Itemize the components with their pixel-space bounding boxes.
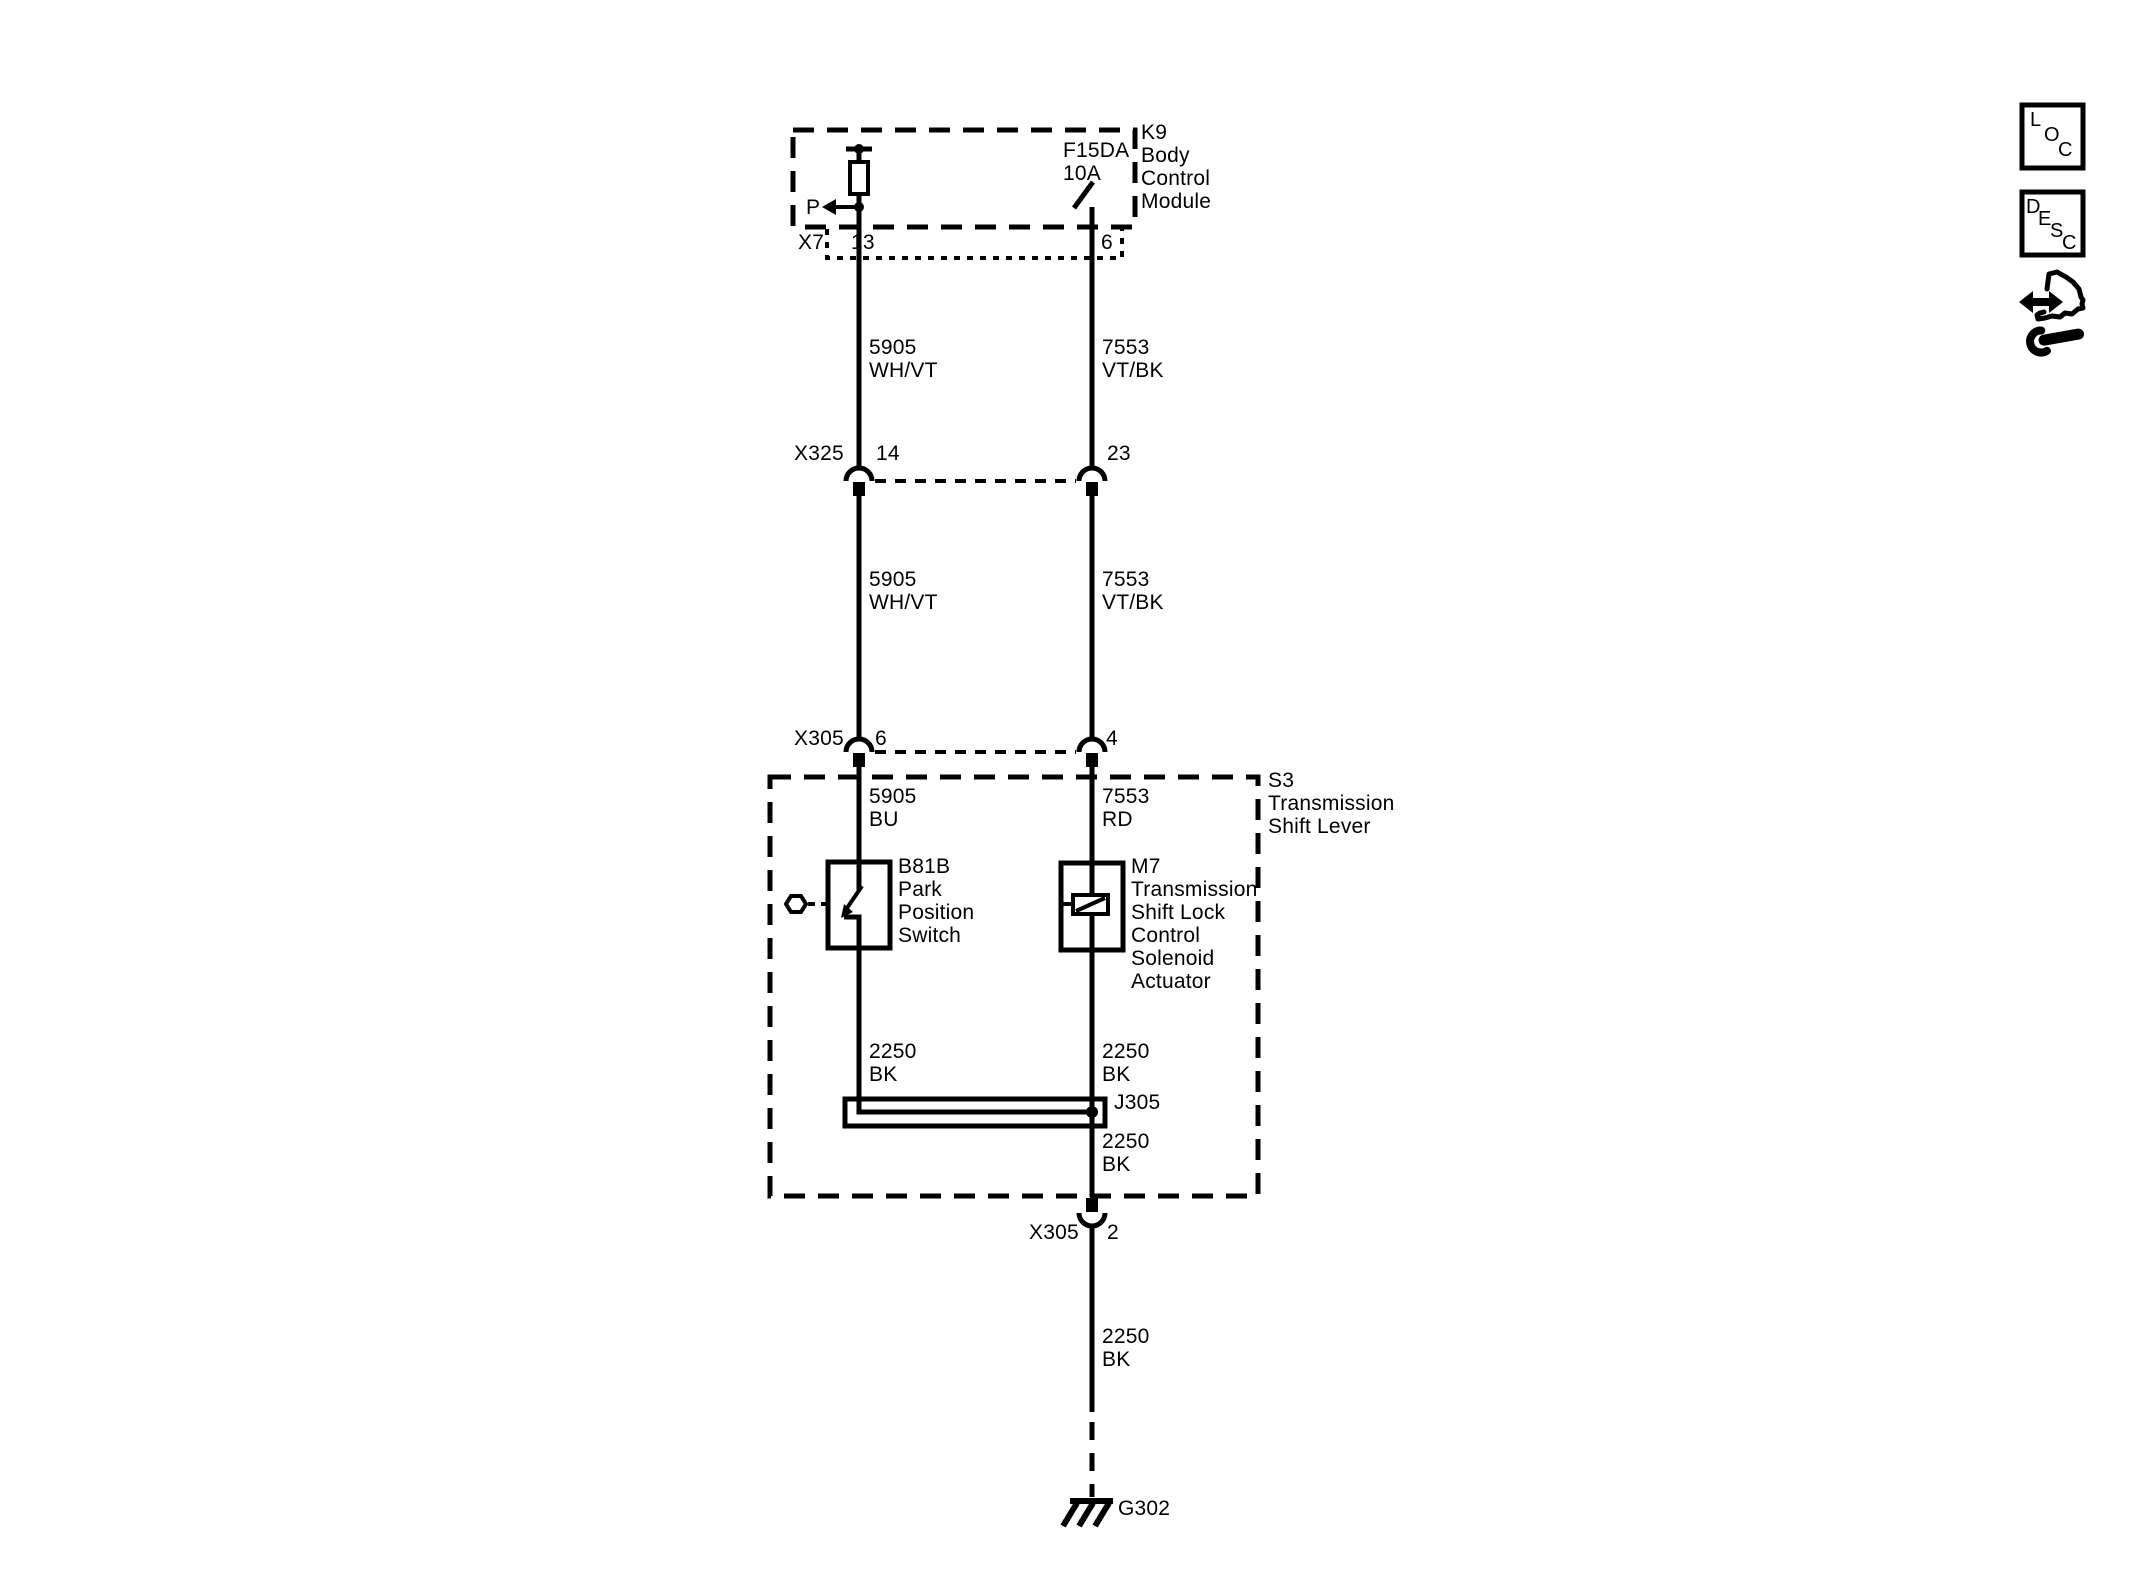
park-switch-name: Park Position Switch	[898, 878, 974, 947]
connector-x7-label: X7	[798, 231, 824, 254]
connector-x305-label: X305	[794, 727, 844, 750]
wire-label-right-ground: 2250 BK	[1102, 1040, 1150, 1086]
connector-x7-pin-right: 6	[1101, 231, 1113, 254]
ground-symbol	[1063, 1501, 1113, 1526]
repair-tool-icon[interactable]	[2019, 272, 2083, 354]
ground-label: G302	[1118, 1497, 1170, 1520]
wiring-diagram-page: P F15DA 10A K9 Body Control Module X7 13…	[0, 0, 2130, 1595]
wire-7553	[1086, 207, 1098, 1497]
bcm-name: Body Control Module	[1141, 144, 1211, 213]
park-switch-ref: B81B	[898, 855, 950, 878]
connector-x305-ground-label: X305	[1029, 1221, 1079, 1244]
connector-x325-symbol	[846, 468, 1105, 496]
bcm-resistor-symbol	[846, 144, 872, 208]
connector-x7-pin-left: 13	[851, 231, 875, 254]
connector-x305-ground-pin: 2	[1107, 1221, 1119, 1244]
loc-letter: L	[2030, 110, 2041, 130]
wire-label-right-mid: 7553 VT/BK	[1102, 568, 1164, 614]
wire-label-right-upper: 7553 VT/BK	[1102, 336, 1164, 382]
wire-label-left-mid: 5905 WH/VT	[869, 568, 938, 614]
fuse-label: F15DA 10A	[1063, 139, 1129, 185]
connector-x325-pin-right: 23	[1107, 442, 1131, 465]
fuse-f15da-symbol	[1074, 182, 1093, 208]
desc-letter: C	[2062, 233, 2076, 253]
park-switch-symbol	[786, 862, 890, 948]
wire-label-left-upper: 5905 WH/VT	[869, 336, 938, 382]
connector-x325-pin-left: 14	[876, 442, 900, 465]
shift-lever-name: Transmission Shift Lever	[1268, 792, 1394, 838]
solenoid-name: Transmission Shift Lock Control Solenoid…	[1131, 878, 1257, 993]
solenoid-ref: M7	[1131, 855, 1161, 878]
splice-label: J305	[1114, 1091, 1160, 1114]
wire-label-splice-out: 2250 BK	[1102, 1130, 1150, 1176]
wire-label-left-lever: 5905 BU	[869, 785, 917, 831]
park-signal-label: P	[806, 196, 820, 219]
schematic-artwork	[0, 0, 2130, 1595]
bcm-ref: K9	[1141, 121, 1167, 144]
wire-label-ground-run: 2250 BK	[1102, 1325, 1150, 1371]
connector-x325-label: X325	[794, 442, 844, 465]
shift-lever-ref: S3	[1268, 769, 1294, 792]
loc-letter: C	[2058, 140, 2072, 160]
connector-x305-pin-left: 6	[875, 727, 887, 750]
connector-x305-pin-right: 4	[1106, 727, 1118, 750]
connector-x305-ground-symbol	[1079, 1198, 1105, 1226]
wire-label-right-lever: 7553 RD	[1102, 785, 1150, 831]
wire-label-left-ground: 2250 BK	[869, 1040, 917, 1086]
